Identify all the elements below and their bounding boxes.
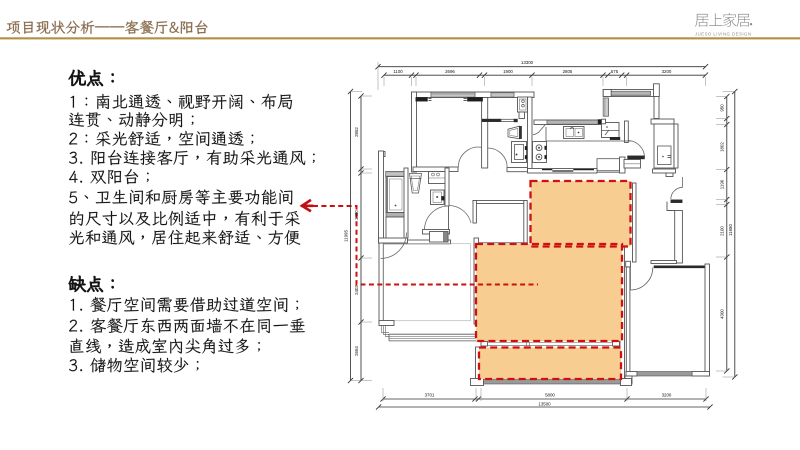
svg-text:2664: 2664 [354, 346, 359, 356]
svg-text:1100: 1100 [393, 69, 403, 74]
svg-text:11995: 11995 [344, 230, 349, 242]
svg-text:950: 950 [720, 104, 725, 112]
svg-text:4300: 4300 [720, 309, 725, 319]
svg-text:3200: 3200 [662, 393, 672, 398]
svg-text:1900: 1900 [503, 69, 513, 74]
svg-text:575: 575 [611, 69, 619, 74]
svg-text:1802: 1802 [720, 142, 725, 152]
svg-text:2805: 2805 [563, 69, 573, 74]
svg-text:3400: 3400 [354, 210, 359, 220]
svg-text:3200: 3200 [662, 69, 672, 74]
svg-text:2852: 2852 [354, 127, 359, 137]
svg-text:5800: 5800 [545, 393, 555, 398]
svg-text:13300: 13300 [521, 60, 534, 65]
svg-text:1196: 1196 [720, 179, 725, 189]
svg-text:3701: 3701 [425, 393, 435, 398]
svg-text:2100: 2100 [720, 226, 725, 236]
svg-text:2696: 2696 [445, 69, 455, 74]
svg-text:13500: 13500 [538, 401, 551, 406]
svg-text:JUESO LIVING DESIGN: JUESO LIVING DESIGN [695, 31, 751, 36]
svg-text:2402: 2402 [354, 285, 359, 295]
svg-text:11650: 11650 [728, 224, 733, 236]
